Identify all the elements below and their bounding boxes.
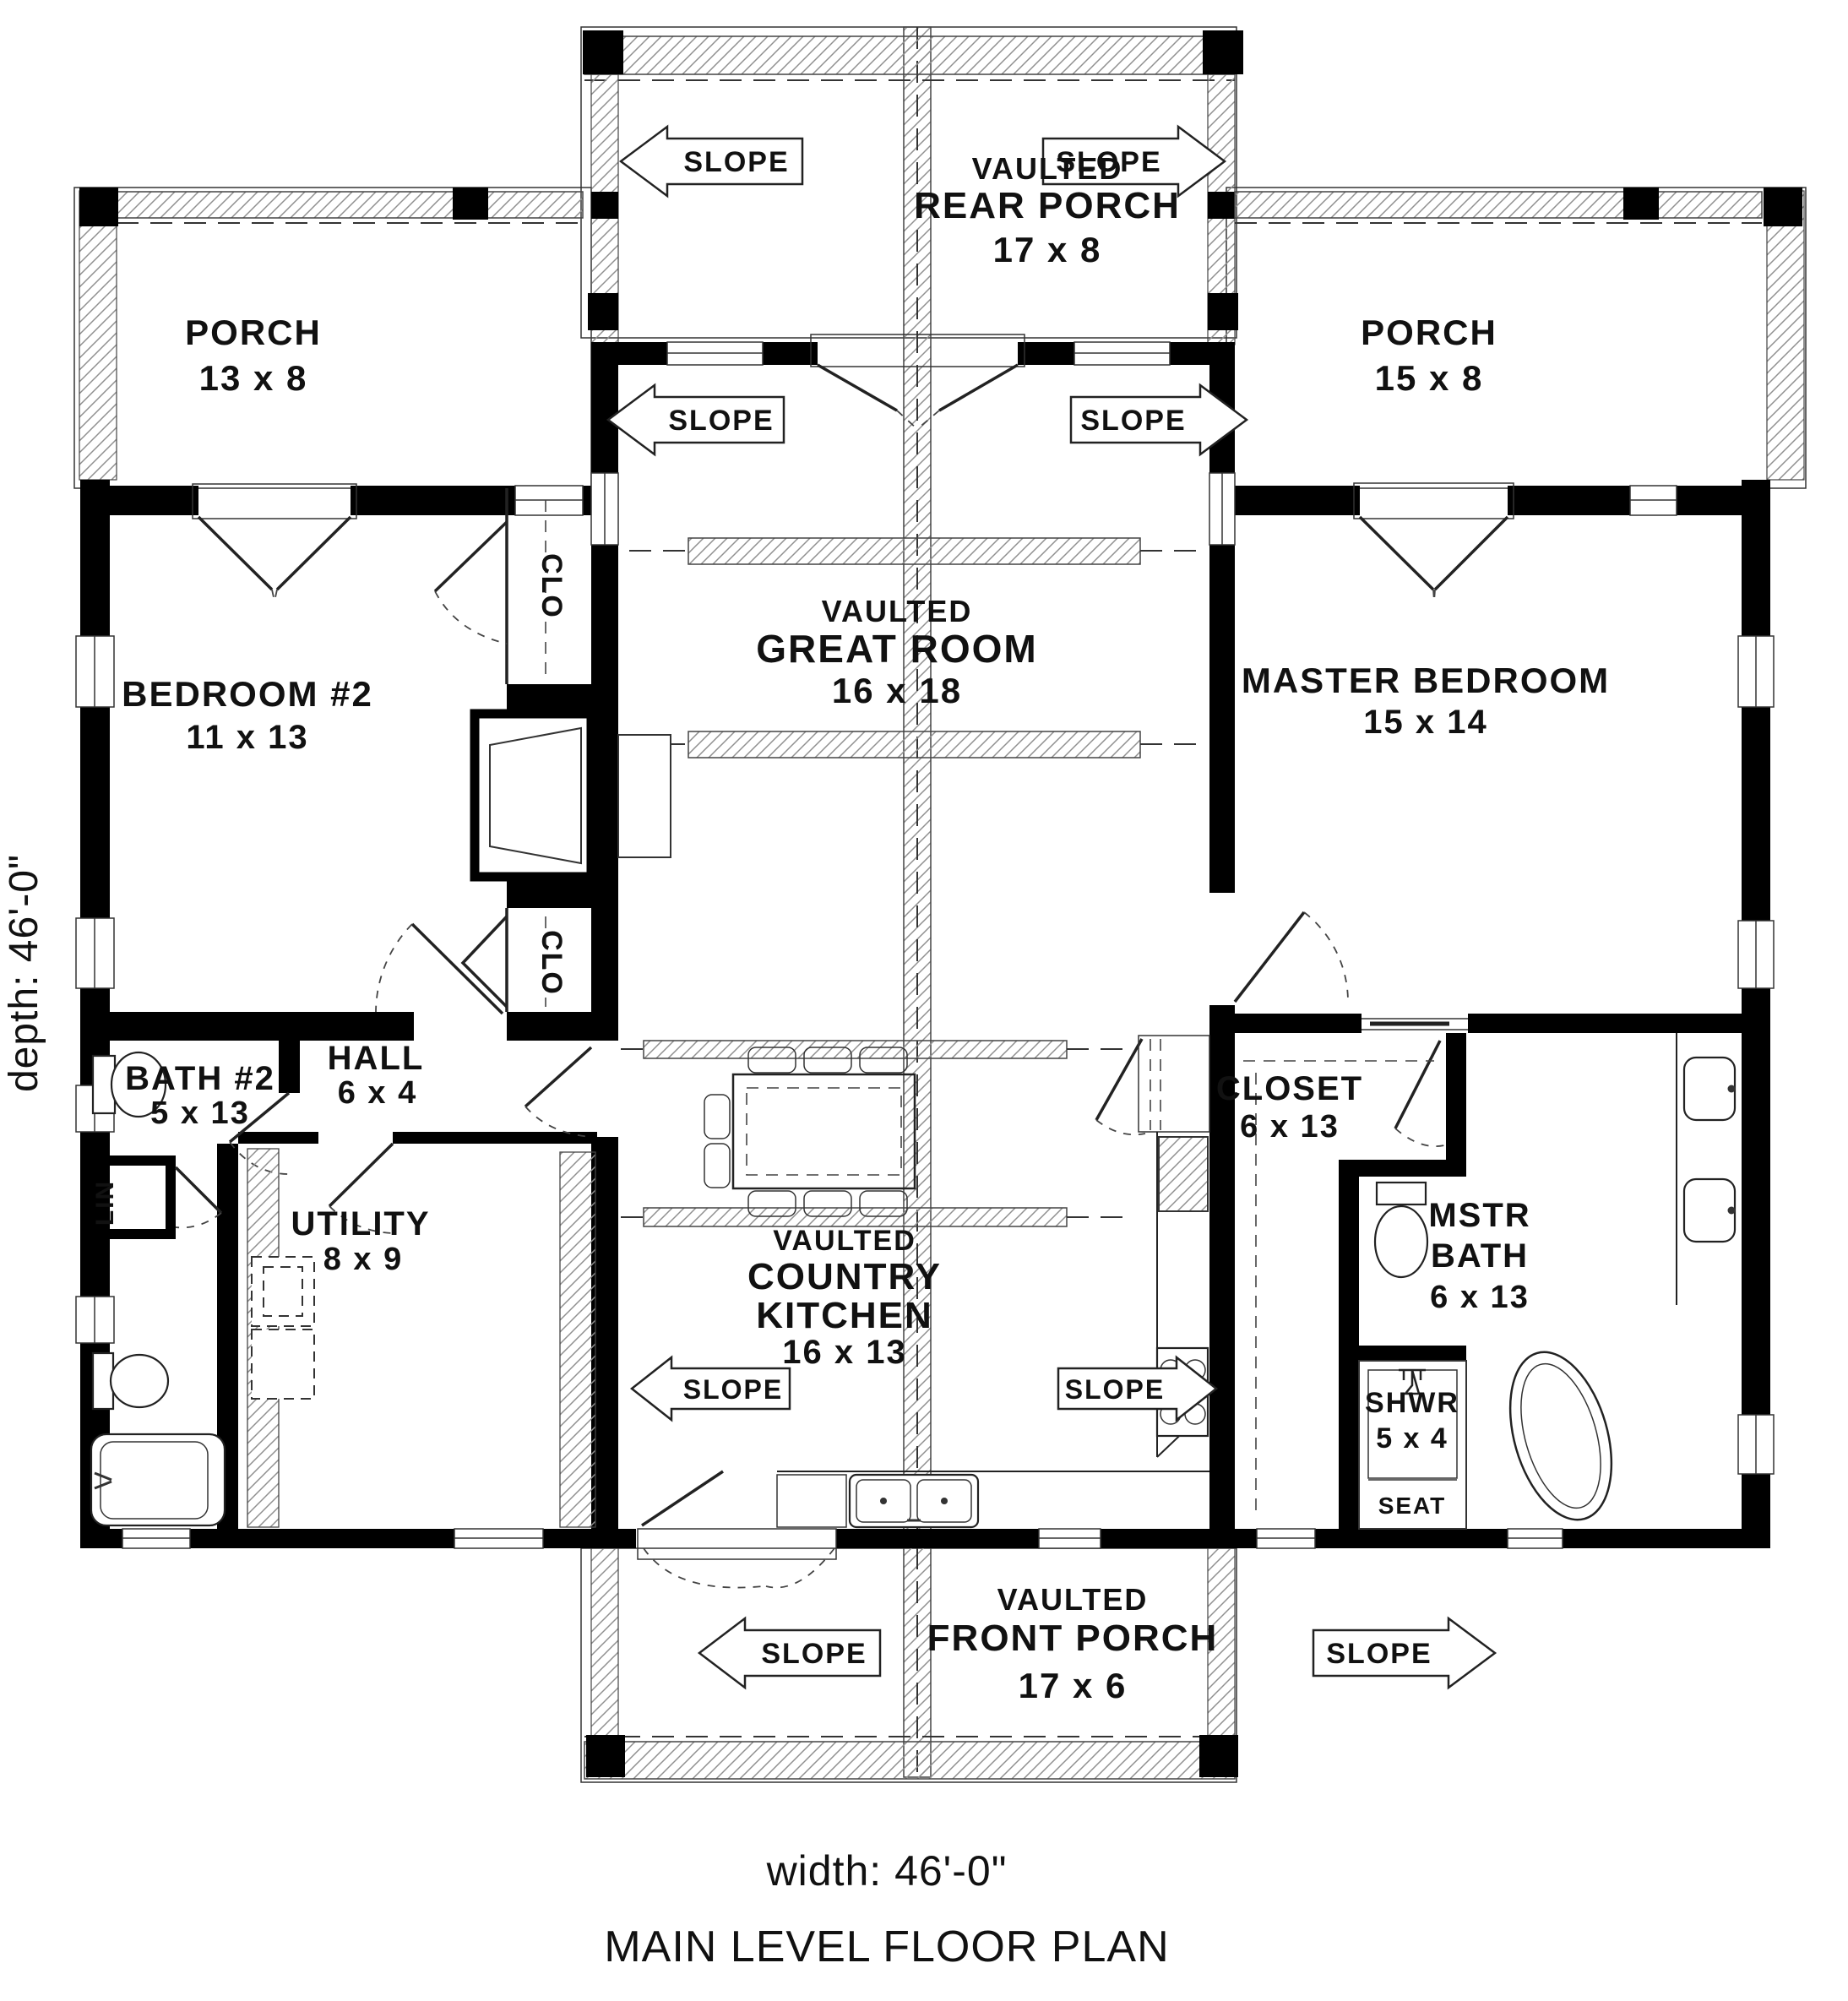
porch-right-name: PORCH <box>1361 313 1497 352</box>
slope-label: SLOPE <box>1065 1374 1165 1405</box>
master-bath-mstr: MSTR <box>1428 1197 1530 1234</box>
great-room-vaulted: VAULTED <box>822 594 973 628</box>
width-dimension: width: 46'-0" <box>766 1847 1008 1895</box>
slope-arrow-rear-left: SLOPE <box>621 127 802 196</box>
master-bath-bath: BATH <box>1431 1237 1529 1275</box>
master-bath-dims: 6 x 13 <box>1430 1280 1530 1315</box>
bedroom2-dims: 11 x 13 <box>186 719 308 756</box>
front-porch-vaulted: VAULTED <box>997 1582 1149 1617</box>
lin-label: LIN <box>91 1180 119 1226</box>
porch-left-dims: 13 x 8 <box>199 358 308 398</box>
hearth <box>618 735 671 857</box>
floor-plan-page: SLOPE SLOPE SLOPE SLOPE SLOPE SLOPE SLOP… <box>0 0 1848 2001</box>
master-bedroom-dims: 15 x 14 <box>1363 704 1487 741</box>
bedroom2-name: BEDROOM #2 <box>122 674 373 714</box>
floor-plan-drawing: SLOPE SLOPE SLOPE SLOPE SLOPE SLOPE SLOP… <box>0 0 1848 2001</box>
french-door-left <box>818 365 897 411</box>
doors <box>176 334 1514 1588</box>
great-room-dims: 16 x 18 <box>832 671 962 710</box>
dryer <box>252 1329 314 1399</box>
fireplace <box>475 714 671 877</box>
dining-table <box>704 1047 915 1216</box>
slope-arrow-kitchen-left: SLOPE <box>632 1357 790 1420</box>
clo-label-top: CLO <box>535 553 568 619</box>
depth-dimension: depth: 46'-0" <box>2 854 46 1092</box>
closet-bifold-door <box>463 916 507 1007</box>
toilet <box>93 1353 168 1409</box>
pantry <box>1139 1036 1209 1132</box>
porch-left-name: PORCH <box>185 313 322 352</box>
master-tub <box>1492 1340 1629 1531</box>
slope-arrow-front-right: SLOPE <box>1313 1618 1495 1688</box>
french-door-right <box>939 365 1018 411</box>
kitchen-vaulted: VAULTED <box>773 1225 916 1257</box>
slope-label: SLOPE <box>668 405 774 437</box>
kitchen-sink <box>850 1475 978 1527</box>
kitchen-name: KITCHEN <box>756 1295 933 1336</box>
slope-label: SLOPE <box>683 1374 783 1405</box>
porch-right-dims: 15 x 8 <box>1375 358 1484 398</box>
master-bedroom-name: MASTER BEDROOM <box>1242 661 1610 700</box>
closet-door <box>435 522 507 591</box>
bathtub <box>91 1434 225 1525</box>
shower-seat: SEAT <box>1378 1493 1447 1519</box>
slope-arrow-front-left: SLOPE <box>699 1618 880 1688</box>
vanity-sink-2 <box>1684 1179 1736 1242</box>
bath2-dims: 5 x 13 <box>150 1096 250 1131</box>
hall-name: HALL <box>328 1040 425 1077</box>
slope-label: SLOPE <box>1080 405 1186 437</box>
utility-name: UTILITY <box>291 1205 430 1242</box>
master-toilet <box>1375 1183 1427 1277</box>
front-porch-name: FRONT PORCH <box>927 1618 1219 1659</box>
rear-porch-vaulted: VAULTED <box>972 151 1123 186</box>
great-room-name: GREAT ROOM <box>756 627 1037 671</box>
washer-drum <box>264 1267 302 1316</box>
closet-dims: 6 x 13 <box>1240 1109 1340 1145</box>
vanity-sink-1 <box>1684 1058 1736 1120</box>
slope-label: SLOPE <box>761 1638 867 1670</box>
hall-dims: 6 x 4 <box>338 1075 418 1111</box>
utility-dims: 8 x 9 <box>323 1242 404 1277</box>
dishwasher <box>777 1475 846 1527</box>
bath2-name: BATH #2 <box>125 1060 275 1097</box>
slope-label: SLOPE <box>683 146 789 178</box>
rear-porch-name: REAR PORCH <box>914 185 1181 226</box>
clo-label-bottom: CLO <box>535 930 568 996</box>
shower-dims: 5 x 4 <box>1376 1422 1449 1455</box>
plan-title: MAIN LEVEL FLOOR PLAN <box>604 1922 1169 1971</box>
refrigerator <box>1159 1137 1208 1211</box>
kitchen-dims: 16 x 13 <box>782 1334 906 1371</box>
front-porch-dims: 17 x 6 <box>1019 1666 1128 1705</box>
rear-porch-dims: 17 x 8 <box>993 230 1102 269</box>
kitchen-country: COUNTRY <box>747 1256 942 1297</box>
slope-arrow-greatroom-left: SLOPE <box>608 385 784 454</box>
shower-name: SHWR <box>1365 1387 1459 1419</box>
slope-label: SLOPE <box>1326 1638 1432 1670</box>
closet-name: CLOSET <box>1216 1070 1363 1107</box>
